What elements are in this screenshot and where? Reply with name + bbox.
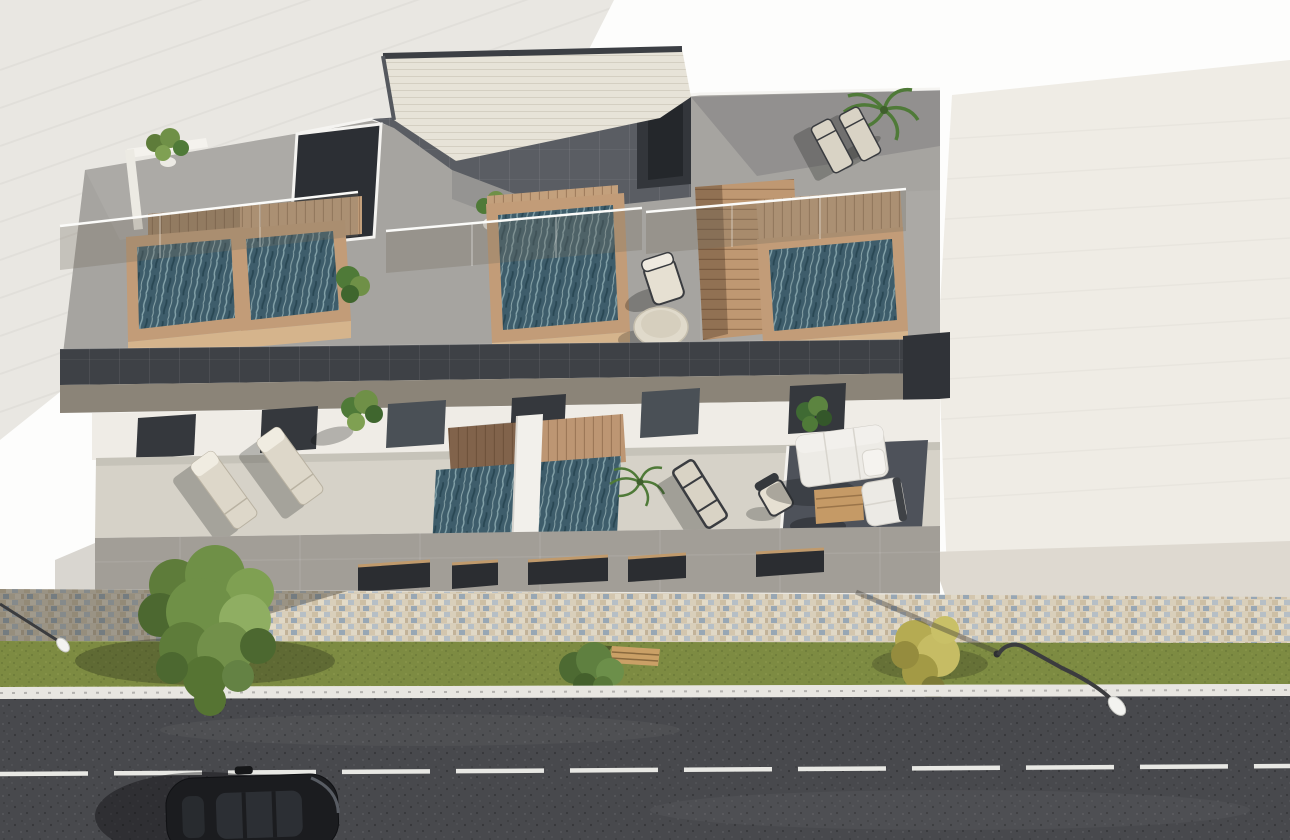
- car-mirror: [235, 766, 253, 775]
- neighbor-roof-right: [930, 60, 1290, 601]
- car-rear-glass: [182, 796, 205, 839]
- aerial-render: [0, 0, 1290, 840]
- render-canvas: Aerial 3D architectural rendering of a m…: [0, 0, 1290, 840]
- armchair: [860, 477, 907, 527]
- fascia-corner: [903, 332, 950, 402]
- car-roof-glass: [216, 790, 304, 839]
- pool-water: [769, 239, 897, 331]
